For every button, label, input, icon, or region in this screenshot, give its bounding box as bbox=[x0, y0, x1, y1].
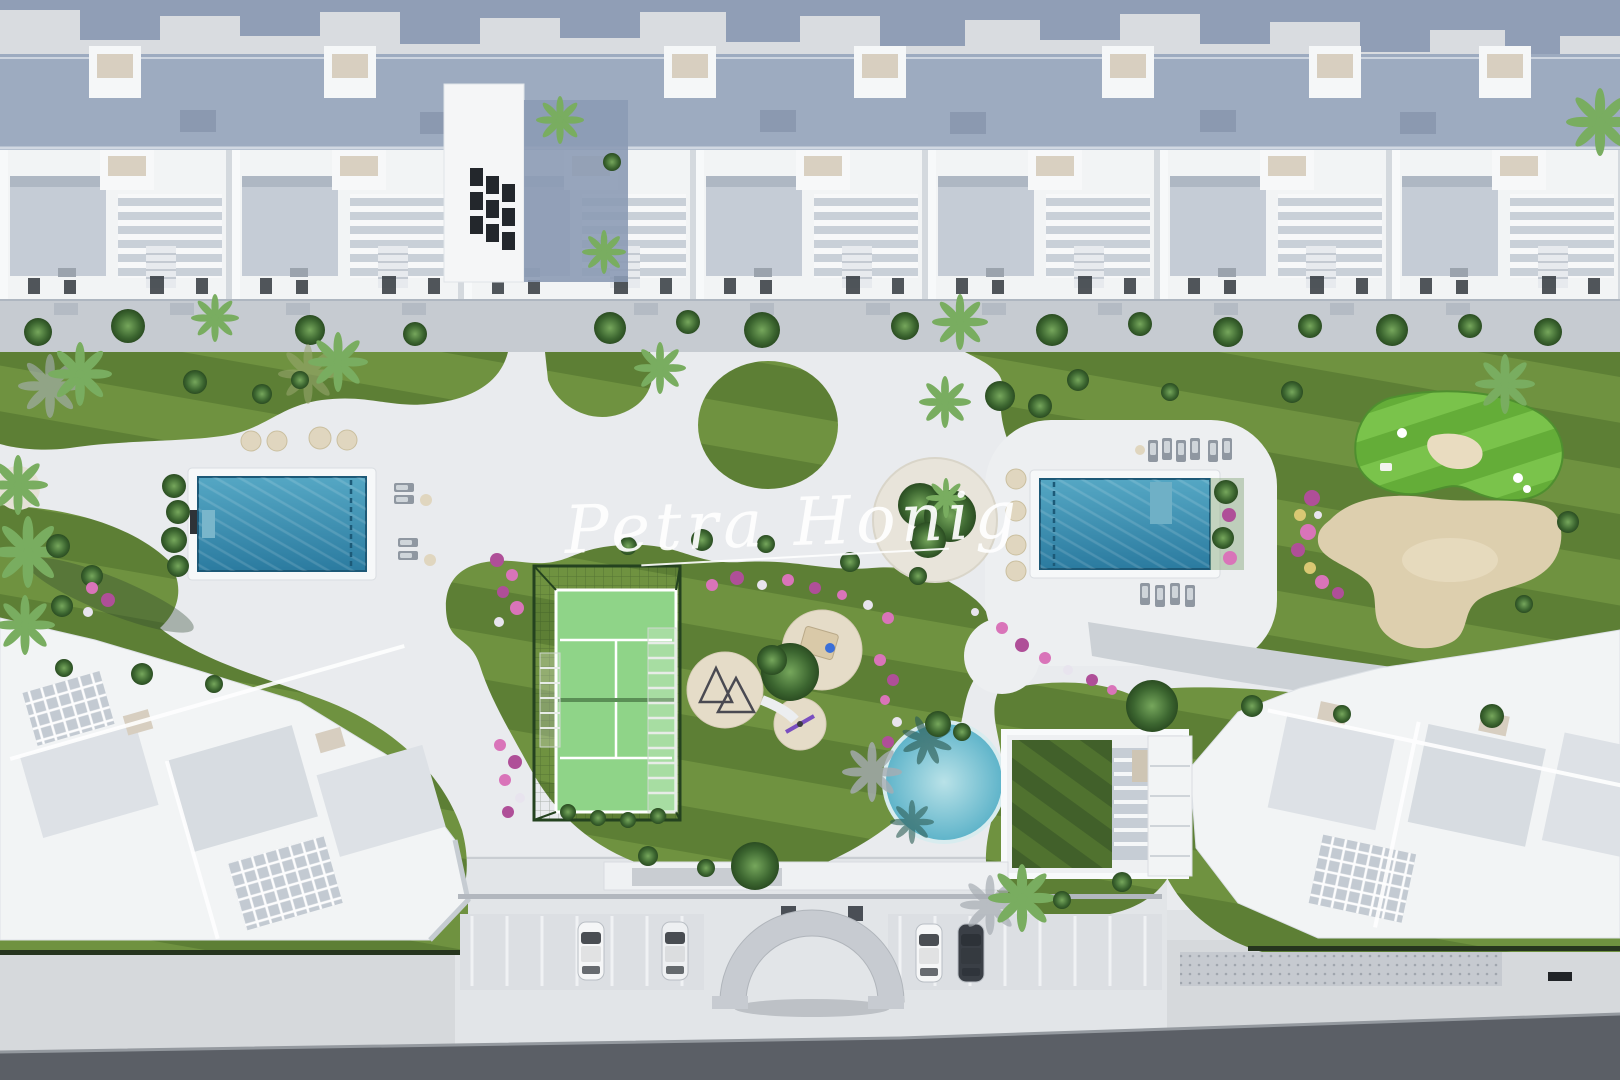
tree-icon bbox=[757, 645, 787, 675]
bush-icon bbox=[252, 384, 272, 404]
bush-icon bbox=[1557, 511, 1579, 533]
palm-icon bbox=[634, 342, 686, 394]
bush-icon bbox=[985, 381, 1015, 411]
townhouse-row bbox=[0, 150, 1620, 300]
townhouse-unit bbox=[696, 150, 928, 300]
pool-bench bbox=[190, 510, 197, 534]
bush-icon bbox=[1212, 527, 1234, 549]
bush-icon bbox=[167, 555, 189, 577]
bush-icon bbox=[638, 846, 658, 866]
palm-shadow-icon bbox=[842, 742, 902, 802]
tree-icon bbox=[676, 310, 700, 334]
bush-icon bbox=[697, 859, 715, 877]
padel-court bbox=[534, 566, 680, 820]
tree-icon bbox=[603, 153, 621, 171]
hedge-line-right bbox=[1248, 946, 1620, 951]
palm-icon bbox=[932, 294, 988, 350]
watermark-text: Petra Honig bbox=[562, 476, 1022, 569]
tree-icon bbox=[731, 842, 779, 890]
stair-tower bbox=[1479, 46, 1531, 98]
palm-icon bbox=[191, 294, 239, 342]
sun-loungers-right-top bbox=[1135, 438, 1232, 462]
stair-tower bbox=[1102, 46, 1154, 98]
tree-icon bbox=[594, 312, 626, 344]
water-texture bbox=[198, 477, 366, 571]
bush-icon bbox=[55, 659, 73, 677]
bush-icon bbox=[1161, 383, 1179, 401]
tree-icon bbox=[1376, 314, 1408, 346]
car-dark bbox=[958, 924, 984, 982]
watermark: Petra Honig bbox=[562, 476, 1022, 569]
golf-ball bbox=[1513, 473, 1523, 483]
tree-icon bbox=[744, 312, 780, 348]
golf-ball bbox=[1523, 485, 1531, 493]
bush-icon bbox=[46, 534, 70, 558]
bush-icon bbox=[1515, 595, 1533, 613]
palm-icon bbox=[308, 332, 368, 392]
tall-corner-building bbox=[444, 84, 628, 282]
bush-icon bbox=[131, 663, 153, 685]
townhouse-unit bbox=[232, 150, 464, 300]
paver-texture bbox=[1180, 952, 1502, 986]
tree-icon bbox=[111, 309, 145, 343]
tree-icon bbox=[1213, 317, 1243, 347]
stair-tower bbox=[1309, 46, 1361, 98]
water-texture bbox=[1040, 479, 1210, 569]
tree-icon bbox=[403, 322, 427, 346]
pool-steps bbox=[1150, 482, 1172, 524]
bush-icon bbox=[291, 371, 309, 389]
bush-icon bbox=[1333, 705, 1351, 723]
hedge-icon bbox=[1126, 680, 1178, 732]
arch-shadow bbox=[734, 999, 890, 1017]
green-marker bbox=[1380, 463, 1392, 471]
bush-icon bbox=[166, 500, 190, 524]
tree-icon bbox=[1036, 314, 1068, 346]
palm-icon bbox=[919, 376, 971, 428]
arch-leg bbox=[712, 996, 748, 1009]
tree-icon bbox=[1298, 314, 1322, 338]
townhouse-unit bbox=[928, 150, 1160, 300]
bush-icon bbox=[925, 711, 951, 737]
cage-ladder-right bbox=[648, 628, 676, 812]
bush-icon bbox=[161, 527, 187, 553]
bush-icon bbox=[1241, 695, 1263, 717]
car-white bbox=[662, 922, 688, 980]
stair-tower bbox=[89, 46, 141, 98]
tree-icon bbox=[891, 312, 919, 340]
bush-icon bbox=[620, 812, 636, 828]
palm-icon bbox=[1475, 354, 1535, 414]
townhouse-unit bbox=[1392, 150, 1620, 300]
bush-icon bbox=[1480, 704, 1504, 728]
palm-icon bbox=[988, 864, 1056, 932]
bush-icon bbox=[560, 804, 576, 820]
pool-planter bbox=[1210, 478, 1244, 570]
townhouse-unit bbox=[1160, 150, 1392, 300]
tree-icon bbox=[1458, 314, 1482, 338]
site-plan-render: Petra Honig bbox=[0, 0, 1620, 1080]
street-mat bbox=[1548, 972, 1572, 981]
hedge-line-left bbox=[0, 950, 468, 955]
bush-icon bbox=[205, 675, 223, 693]
bush-icon bbox=[1053, 891, 1071, 909]
rear-roof-band bbox=[0, 54, 1620, 154]
bush-icon bbox=[650, 808, 666, 824]
stair-tower bbox=[324, 46, 376, 98]
green-roof bbox=[1012, 740, 1112, 868]
palm-shadow-on-water bbox=[890, 800, 934, 844]
bush-icon bbox=[162, 474, 186, 498]
palm-icon bbox=[536, 96, 584, 144]
sand-highlight bbox=[1402, 538, 1498, 582]
car-white bbox=[916, 924, 942, 982]
palm-icon bbox=[582, 230, 626, 274]
bush-icon bbox=[1067, 369, 1089, 391]
tree-icon bbox=[24, 318, 52, 346]
tree-icon bbox=[295, 315, 325, 345]
bush-icon bbox=[590, 810, 606, 826]
bush-icon bbox=[1028, 394, 1052, 418]
tall-building-roof bbox=[444, 84, 524, 282]
small-white-building bbox=[1148, 736, 1192, 876]
bush-icon bbox=[183, 370, 207, 394]
bush-icon bbox=[1281, 381, 1303, 403]
tree-icon bbox=[1128, 312, 1152, 336]
golf-hole bbox=[1397, 428, 1407, 438]
bush-icon bbox=[51, 595, 73, 617]
palm-icon bbox=[48, 342, 112, 406]
bush-icon bbox=[909, 567, 927, 585]
bush-icon bbox=[1214, 480, 1238, 504]
stair-tower bbox=[664, 46, 716, 98]
play-toy bbox=[825, 643, 835, 653]
tree-icon bbox=[1534, 318, 1562, 346]
car-white bbox=[578, 922, 604, 980]
arch-leg bbox=[868, 996, 904, 1009]
lawn-center-circle bbox=[698, 361, 838, 489]
bush-icon bbox=[1112, 872, 1132, 892]
stair-tower bbox=[854, 46, 906, 98]
cage-ladder-left bbox=[540, 653, 560, 747]
pool-steps bbox=[202, 510, 215, 538]
townhouse-unit bbox=[0, 150, 232, 300]
render-stage: Petra Honig bbox=[0, 0, 1620, 1080]
bush-icon bbox=[953, 723, 971, 741]
